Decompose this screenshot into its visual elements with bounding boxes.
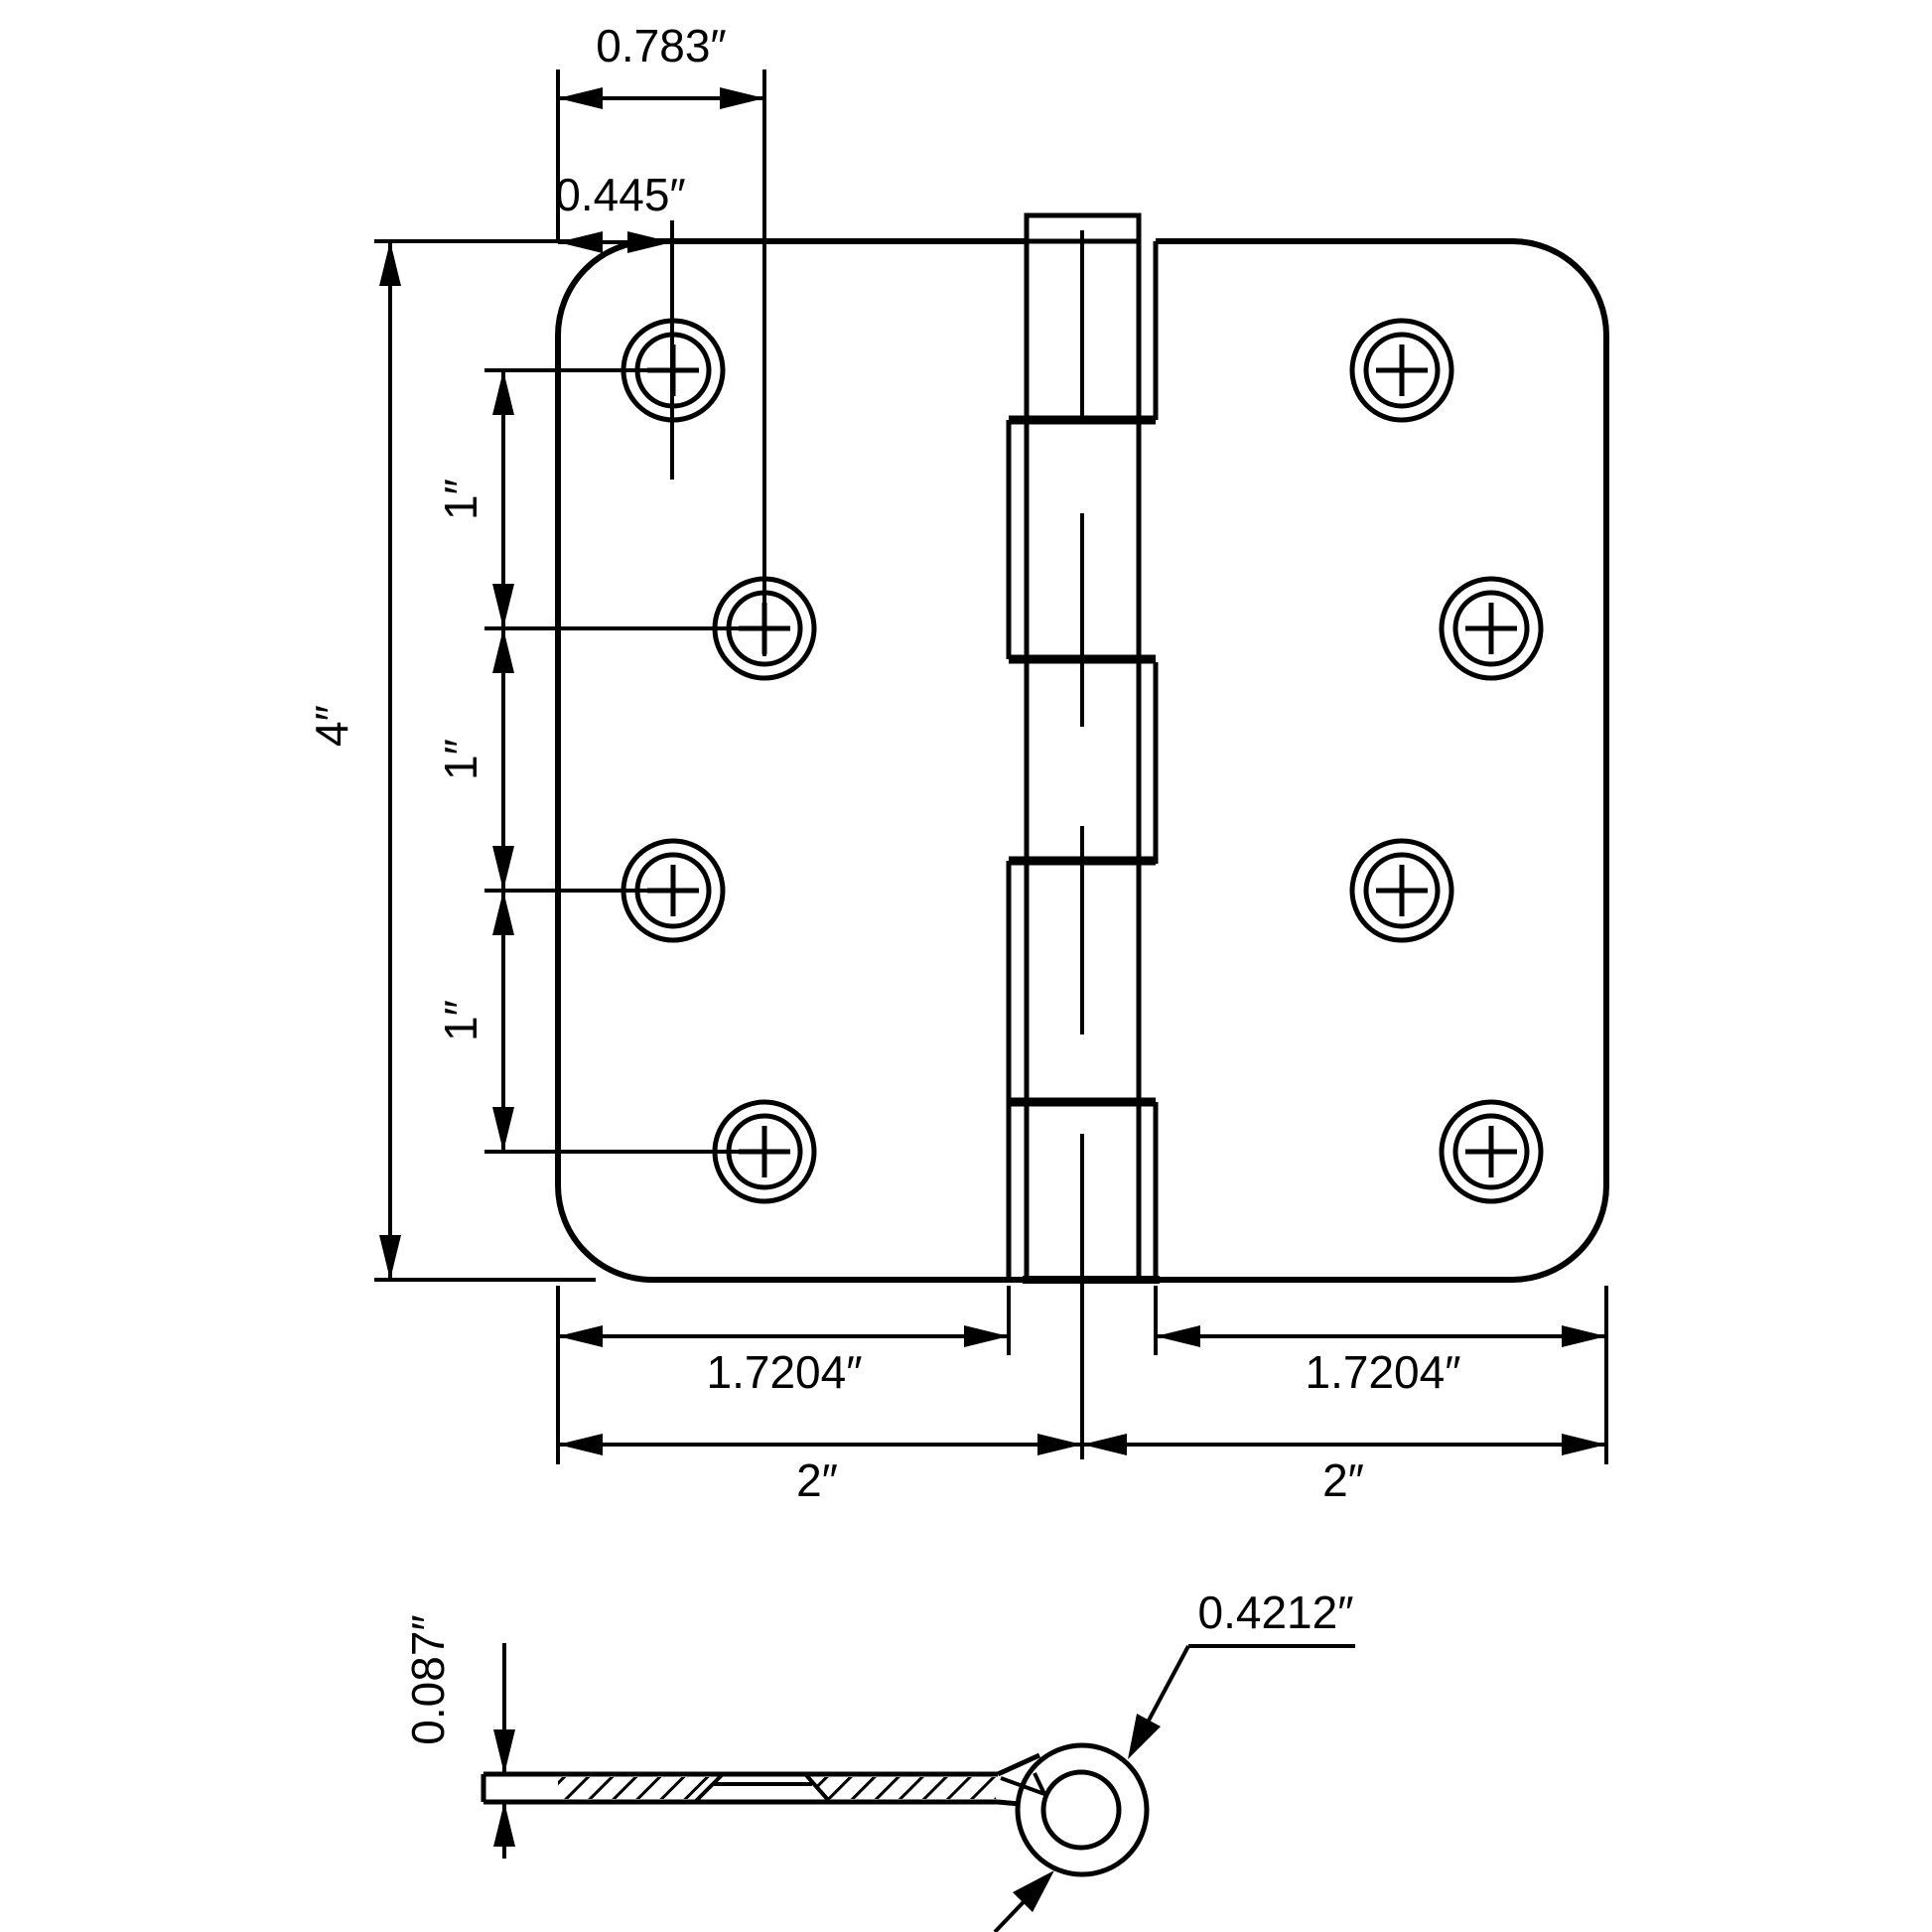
dim-label-right-half: 2″ xyxy=(1322,1454,1364,1506)
dim-label-height: 4″ xyxy=(306,705,357,747)
dim-hole-pitches: 1″ 1″ 1″ xyxy=(435,370,739,1152)
dim-edge-to-hole-near: 0.445″ xyxy=(555,169,685,480)
top-view: 0.783″ 0.445″ 4″ xyxy=(306,20,1606,1506)
dim-knuckle-diameter: 0.4212″ xyxy=(1128,1587,1355,1759)
hinge-drawing-page: 0.783″ 0.445″ 4″ xyxy=(0,0,1932,1932)
dim-label-pitch-2: 1″ xyxy=(435,739,486,780)
knuckle xyxy=(1009,215,1160,1280)
dim-label-knuckle: 0.4212″ xyxy=(1198,1587,1354,1638)
dim-label-pitch-1: 1″ xyxy=(435,479,486,520)
dim-label-right-leaf: 1.7204″ xyxy=(1306,1346,1461,1398)
side-view: 0.087″ 0.4212″ xyxy=(402,1587,1355,1932)
dim-label-left-leaf: 1.7204″ xyxy=(707,1346,863,1398)
dim-label-0783: 0.783″ xyxy=(596,20,726,71)
leaf-cross-section xyxy=(483,1774,998,1802)
screw-hole xyxy=(1352,841,1451,940)
dim-label-0445: 0.445″ xyxy=(555,169,685,220)
dim-label-pitch-3: 1″ xyxy=(435,1000,486,1041)
dim-label-thickness: 0.087″ xyxy=(402,1614,454,1744)
hatch-region-right xyxy=(806,1777,996,1799)
screw-hole xyxy=(1442,579,1541,678)
hinge-technical-drawing: 0.783″ 0.445″ 4″ xyxy=(0,0,1932,1932)
screw-holes-right xyxy=(1352,321,1541,1201)
screw-holes-left xyxy=(623,321,814,1201)
screw-hole xyxy=(1352,321,1451,420)
left-leaf-outline xyxy=(558,241,1027,1280)
dim-bottom: 1.7204″ 1.7204″ 2″ 2″ xyxy=(558,1280,1606,1506)
dim-thickness: 0.087″ xyxy=(402,1614,515,1859)
screw-hole xyxy=(1442,1102,1541,1201)
knuckle-curl xyxy=(998,1745,1147,1874)
hatch-region-left xyxy=(558,1777,722,1799)
dim-label-left-half: 2″ xyxy=(796,1454,838,1506)
pin-leader xyxy=(995,1870,1054,1932)
